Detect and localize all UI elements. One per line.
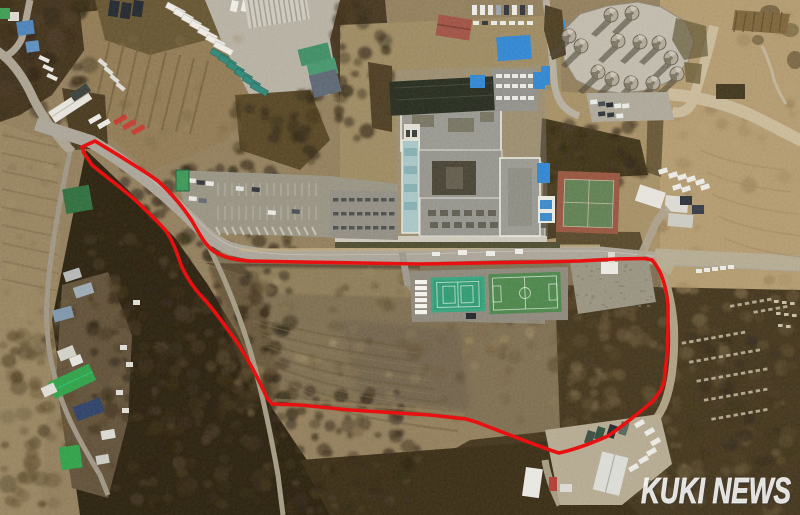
- svg-text:KUKI NEWS: KUKI NEWS: [641, 470, 791, 511]
